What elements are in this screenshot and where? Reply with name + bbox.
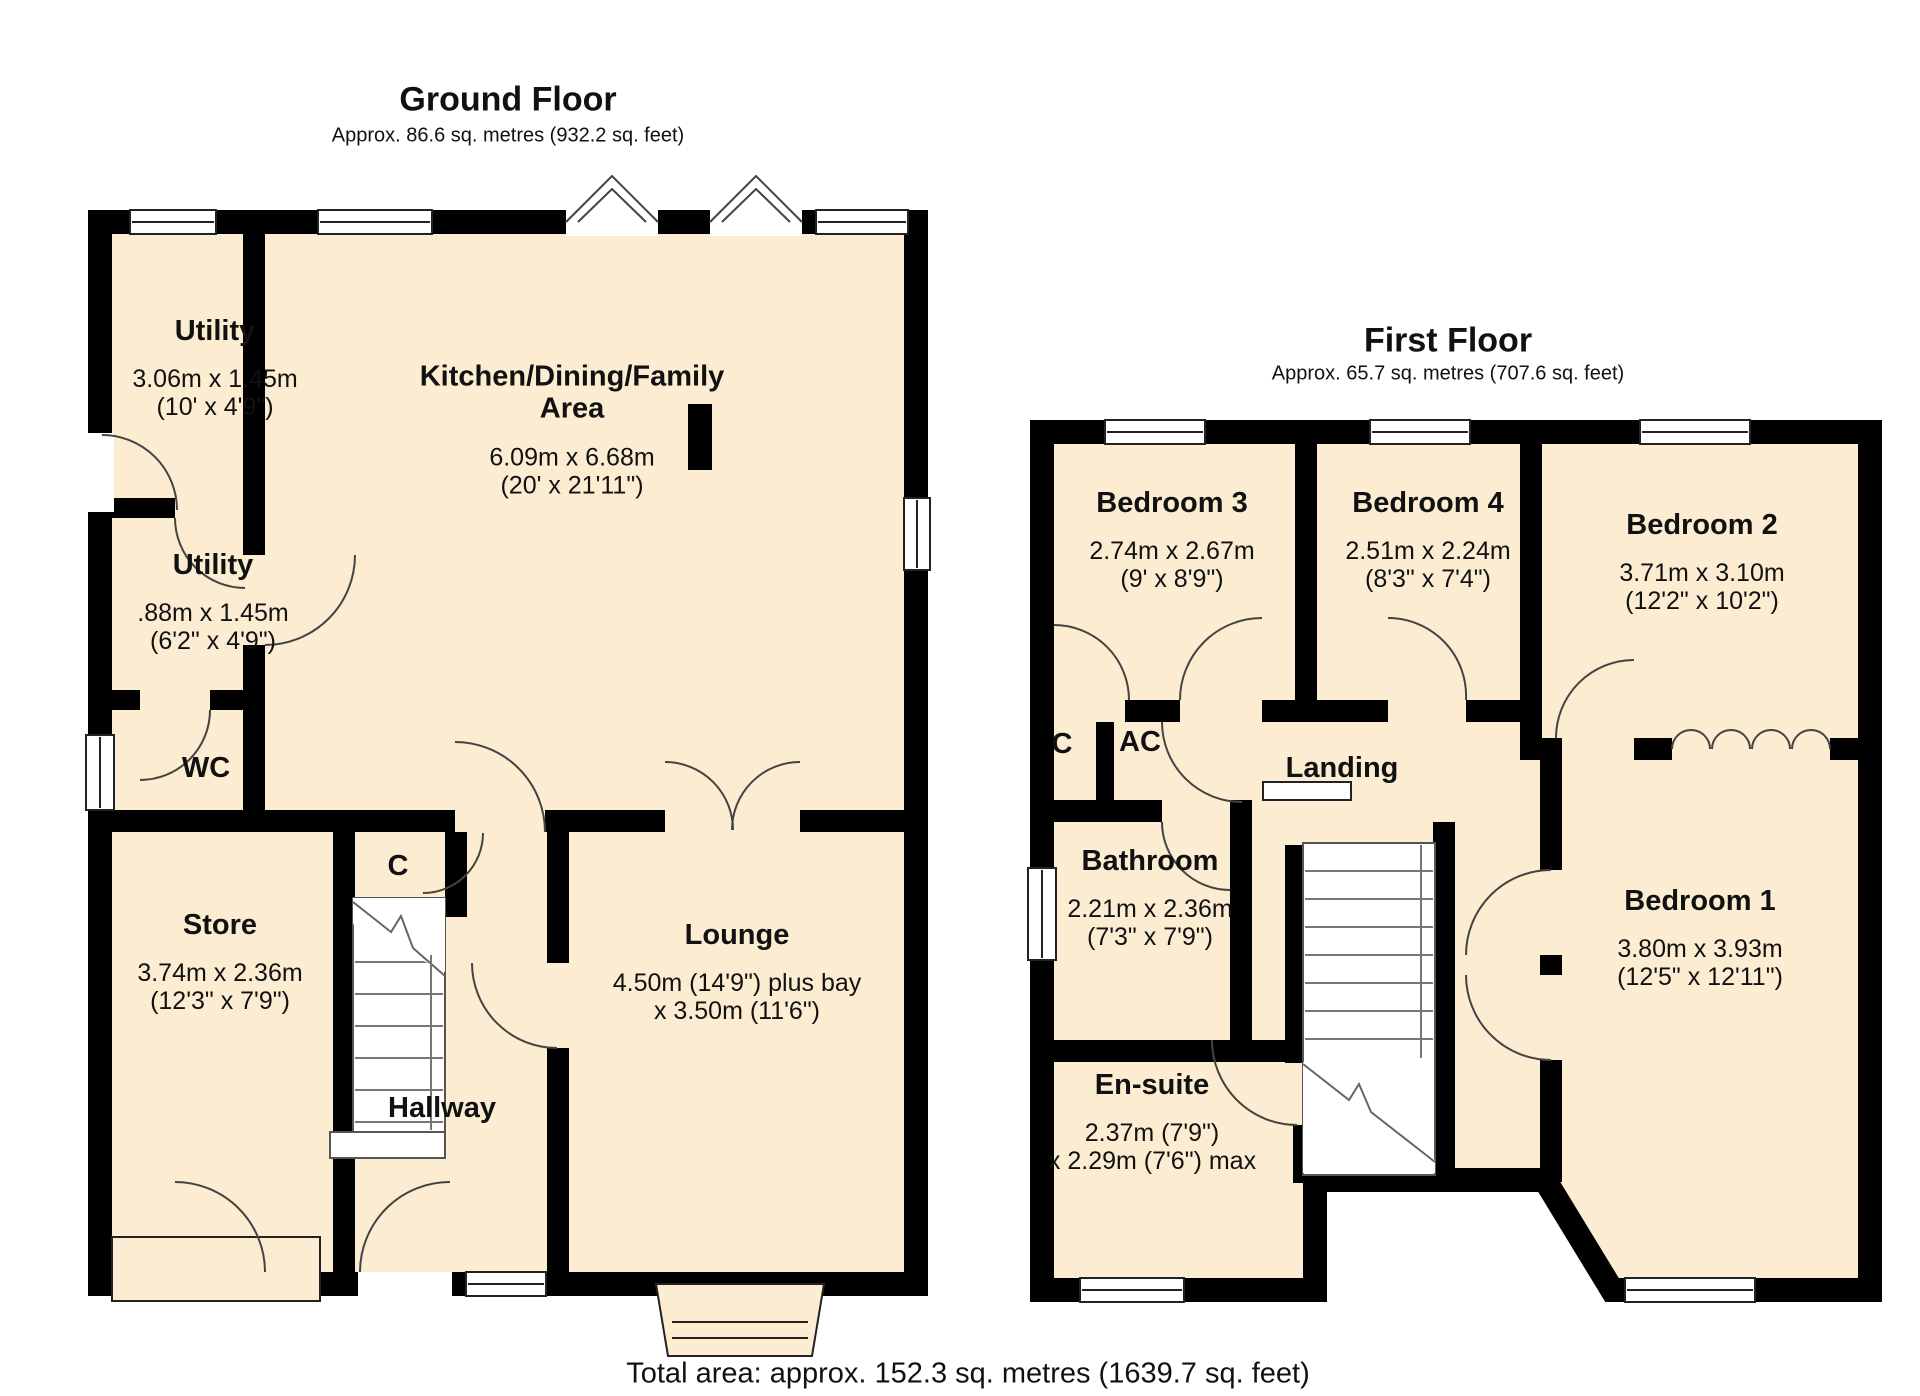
room-name: Kitchen/Dining/Family Area (420, 361, 725, 426)
room-label-bedroom1: Bedroom 1 3.80m x 3.93m (12'5" x 12'11") (1617, 867, 1783, 1009)
room-label-hallway: Hallway (388, 1074, 496, 1142)
room-label-utility-lower: Utility .88m x 1.45m (6'2" x 4'9") (137, 531, 288, 673)
room-name: Utility (132, 315, 297, 347)
room-label-ff-closet: C (1052, 710, 1073, 778)
room-name: WC (182, 752, 230, 784)
room-label-ensuite: En-suite 2.37m (7'9") x 2.29m (7'6") max (1048, 1051, 1256, 1193)
room-label-store: Store 3.74m x 2.36m (12'3" x 7'9") (137, 891, 302, 1033)
room-name: Bedroom 1 (1617, 885, 1783, 917)
room-dims: 2.37m (7'9") x 2.29m (7'6") max (1048, 1119, 1256, 1175)
floorplan-canvas (0, 0, 1920, 1396)
room-name: Utility (137, 549, 288, 581)
room-dims: 2.51m x 2.24m (8'3" x 7'4") (1345, 537, 1510, 593)
first-floor-stairs (1303, 843, 1435, 1175)
ground-floor-subtitle: Approx. 86.6 sq. metres (932.2 sq. feet) (332, 125, 684, 148)
room-name: Hallway (388, 1092, 496, 1124)
room-name: AC (1119, 726, 1161, 758)
room-dims: 6.09m x 6.68m (20' x 21'11") (420, 443, 725, 499)
room-label-landing: Landing (1286, 734, 1399, 802)
room-name: Lounge (613, 919, 862, 951)
room-name: En-suite (1048, 1069, 1256, 1101)
room-name: C (1052, 728, 1073, 760)
door-gap (86, 433, 114, 512)
room-dims: 3.80m x 3.93m (12'5" x 12'11") (1617, 935, 1783, 991)
first-floor-subtitle: Approx. 65.7 sq. metres (707.6 sq. feet) (1272, 363, 1624, 386)
room-dims: 3.71m x 3.10m (12'2" x 10'2") (1619, 559, 1784, 615)
room-dims: .88m x 1.45m (6'2" x 4'9") (137, 599, 288, 655)
room-dims: 3.74m x 2.36m (12'3" x 7'9") (137, 959, 302, 1015)
room-name: Store (137, 909, 302, 941)
room-name: Bedroom 2 (1619, 509, 1784, 541)
room-name: Bedroom 3 (1089, 487, 1254, 519)
room-dims: 4.50m (14'9") plus bay x 3.50m (11'6") (613, 969, 862, 1025)
room-label-bedroom2: Bedroom 2 3.71m x 3.10m (12'2" x 10'2") (1619, 491, 1784, 633)
room-label-kitchen: Kitchen/Dining/Family Area 6.09m x 6.68m… (420, 343, 725, 518)
room-label-airing-cupboard: AC (1119, 708, 1161, 776)
room-label-wc: WC (182, 734, 230, 802)
gable-gap (566, 210, 658, 236)
porch (112, 1237, 320, 1301)
room-dims: 3.06m x 1.45m (10' x 4'9") (132, 365, 297, 421)
door-gap (358, 1272, 452, 1296)
room-label-bedroom4: Bedroom 4 2.51m x 2.24m (8'3" x 7'4") (1345, 469, 1510, 611)
room-label-utility-top: Utility 3.06m x 1.45m (10' x 4'9") (132, 297, 297, 439)
room-label-lounge: Lounge 4.50m (14'9") plus bay x 3.50m (1… (613, 901, 862, 1043)
room-dims: 2.21m x 2.36m (7'3" x 7'9") (1067, 895, 1232, 951)
room-name: Landing (1286, 752, 1399, 784)
room-label-bedroom3: Bedroom 3 2.74m x 2.67m (9' x 8'9") (1089, 469, 1254, 611)
ground-floor-title: Ground Floor (399, 81, 616, 120)
room-name: C (388, 850, 409, 882)
room-name: Bedroom 4 (1345, 487, 1510, 519)
room-dims: 2.74m x 2.67m (9' x 8'9") (1089, 537, 1254, 593)
first-floor-title: First Floor (1364, 322, 1532, 361)
room-label-gf-closet: C (388, 832, 409, 900)
gable-gap (710, 210, 802, 236)
room-name: Bathroom (1067, 845, 1232, 877)
bay-window (656, 1284, 824, 1356)
floorplan-page: Ground Floor Approx. 86.6 sq. metres (93… (0, 0, 1920, 1396)
room-label-bathroom: Bathroom 2.21m x 2.36m (7'3" x 7'9") (1067, 827, 1232, 969)
total-area-text: Total area: approx. 152.3 sq. metres (16… (626, 1358, 1310, 1391)
